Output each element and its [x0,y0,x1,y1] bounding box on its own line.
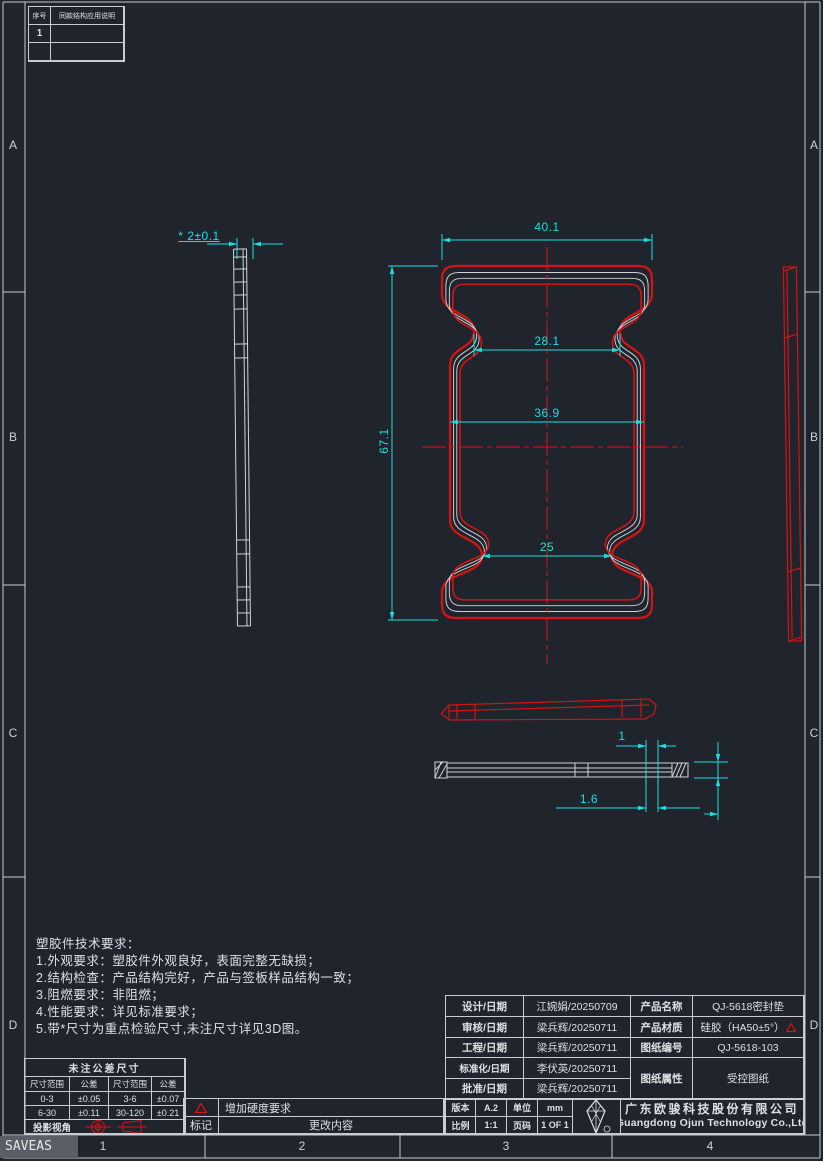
app-col-index: 序号 [29,7,51,25]
version-value: A.2 [476,1099,507,1117]
note-line: 3.阻燃要求：非阻燃； [36,987,359,1004]
version-label: 版本 [446,1099,476,1117]
tolerance-cell: ±0.11 [70,1106,109,1120]
approval-value: 李伏英/20250711 [524,1058,631,1079]
revision-content-label: 更改内容 [219,1117,444,1134]
note-line: 4.性能要求：详见标准要求； [36,1004,359,1021]
tolerance-header: 公差 [152,1077,185,1092]
company-name-en: Guangdong Ojun Technology Co.,Ltd [621,1116,804,1130]
profile-view-red [441,699,656,720]
approval-label: 工程/日期 [446,1038,524,1058]
app-row1-desc [51,25,124,43]
material-label: 产品材质 [631,1017,693,1038]
dim-lip: 1 [610,729,634,743]
dim-neck-top: 28.1 [525,334,569,348]
tolerance-cell: ±0.21 [152,1106,185,1120]
projection-angle-row: 投影视角 [25,1120,185,1134]
approval-value: 梁兵辉/20250711 [524,1017,631,1038]
note-line: 1.外观要求：塑胶件外观良好，表面完整无缺损； [36,953,359,970]
zone-row-letter: D [6,1018,20,1032]
page-label: 页码 [507,1117,538,1134]
page-value: 1 OF 1 [538,1117,573,1134]
zone-col-number: 1 [83,1139,123,1153]
product-name-label: 产品名称 [631,996,693,1017]
approval-value: 江婉娟/20250709 [524,996,631,1017]
dim-lines-lip [556,740,728,820]
notes-title: 塑胶件技术要求： [36,936,359,953]
revision-triangle-cell [184,1099,219,1117]
tolerance-table: 未注公差尺寸 尺寸范围 公差 尺寸范围 公差 0-3 ±0.05 3-6 ±0.… [24,1058,186,1135]
revision-mark-label: 标记 [184,1117,219,1134]
material-revision-triangle-icon [786,1023,796,1032]
unit-value: mm [538,1099,573,1117]
tolerance-cell: 6-30 [25,1106,70,1120]
tolerance-header: 公差 [70,1077,109,1092]
section-view-white [435,762,688,778]
dim-lip-depth: 1.6 [572,792,606,806]
third-angle-projection-icon [83,1120,173,1134]
zone-col-number: 4 [690,1139,730,1153]
tolerance-header: 尺寸范围 [25,1077,70,1092]
company-cell: 广东欧骏科技股份有限公司 Guangdong Ojun Technology C… [621,1099,804,1134]
note-line: 5.带*尺寸为重点检验尺寸,未注尺寸详见3D图。 [36,1021,359,1038]
approval-value: 梁兵辉/20250711 [524,1038,631,1058]
approval-label: 设计/日期 [446,996,524,1017]
approval-value: 梁兵辉/20250711 [524,1079,631,1099]
zone-row-letter: A [808,138,820,152]
tolerance-cell: ±0.07 [152,1092,185,1106]
scale-value: 1:1 [476,1117,507,1134]
projection-angle-label: 投影视角 [33,1120,71,1134]
material-value: 硅胶（HA50±5°） [693,1017,804,1038]
zone-row-letter: A [6,138,20,152]
note-line: 2.结构检查：产品结构完好，产品与签板样品结构一致； [36,970,359,987]
zone-row-letter: C [808,726,820,740]
command-status-text[interactable]: SAVEAS [0,1136,78,1158]
revision-change-text: 增加硬度要求 [219,1099,444,1117]
zone-row-letter: B [808,430,820,444]
dim-height: 67.1 [377,421,391,461]
tolerance-header: 尺寸范围 [109,1077,152,1092]
product-name-value: QJ-5618密封垫 [693,996,804,1017]
revision-strip: 增加硬度要求 标记 更改内容 [183,1098,445,1135]
scale-label: 比例 [446,1117,476,1134]
approval-label: 批准/日期 [446,1079,524,1099]
tolerance-title: 未注公差尺寸 [25,1059,185,1077]
approval-label: 审核/日期 [446,1017,524,1038]
dim-thickness: * 2±0.1 [156,229,242,243]
drawing-no-label: 图纸编号 [631,1038,693,1058]
dim-lines-height [388,266,438,620]
company-logo [573,1099,621,1134]
drawing-no-value: QJ-5618-103 [693,1038,804,1058]
side-view-left [234,249,251,626]
attr-label: 图纸属性 [631,1058,693,1099]
zone-row-letter: B [6,430,20,444]
technical-notes: 塑胶件技术要求： 1.外观要求：塑胶件外观良好，表面完整无缺损； 2.结构检查：… [36,936,359,1038]
kite-logo-icon [576,1099,618,1134]
application-table: 序号 同款结构应用说明 1 [28,6,125,62]
app-row2-index [29,43,51,61]
attr-value: 受控图纸 [693,1058,804,1099]
approval-label: 标准化/日期 [446,1058,524,1079]
dim-width-mid: 36.9 [525,406,569,420]
tolerance-cell: ±0.05 [70,1092,109,1106]
dim-neck-bottom: 25 [530,540,564,554]
side-view-right [783,267,801,641]
company-name-cn: 广东欧骏科技股份有限公司 [625,1102,799,1116]
revision-triangle-icon [195,1103,207,1113]
title-block: 设计/日期 江婉娟/20250709 产品名称 QJ-5618密封垫 审核/日期… [445,995,805,1100]
app-row1-index: 1 [29,25,51,43]
unit-label: 单位 [507,1099,538,1117]
tolerance-cell: 3-6 [109,1092,152,1106]
app-col-desc: 同款结构应用说明 [51,7,124,25]
zone-row-letter: D [808,1018,820,1032]
zone-col-number: 3 [486,1139,526,1153]
cad-drawing-sheet: 40.1 28.1 36.9 25 67.1 * 2±0.1 1 1.6 塑胶件… [0,0,823,1161]
dim-width-top: 40.1 [525,220,569,234]
tolerance-cell: 0-3 [25,1092,70,1106]
tolerance-cell: 30-120 [109,1106,152,1120]
app-row2-desc [51,43,124,61]
zone-row-letter: C [6,726,20,740]
title-block-bottom: 版本 A.2 单位 mm 广东欧骏科技股份有限公司 Guangdong Ojun… [445,1098,805,1135]
zone-col-number: 2 [282,1139,322,1153]
